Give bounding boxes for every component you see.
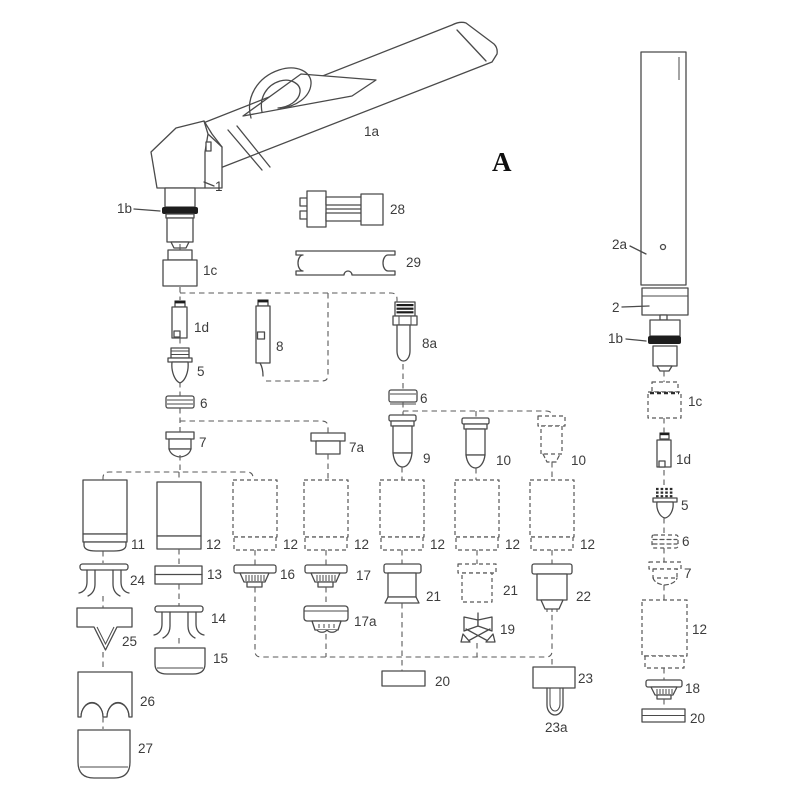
label-part-5-left: 5 bbox=[197, 364, 205, 379]
part-27-cup bbox=[78, 730, 130, 778]
part-6-right-phantom bbox=[652, 535, 678, 548]
label-part-13: 13 bbox=[207, 567, 222, 582]
part-15-cup bbox=[155, 648, 205, 674]
label-part-18: 18 bbox=[685, 681, 700, 696]
part-7a-tip bbox=[311, 433, 345, 454]
label-part-17a: 17a bbox=[354, 614, 377, 629]
part-26-bracket bbox=[78, 672, 132, 717]
part-5-left-electrode bbox=[168, 348, 192, 383]
part-18-shield bbox=[646, 680, 682, 699]
label-part-7a: 7a bbox=[349, 440, 365, 455]
part-19-spacer bbox=[461, 613, 495, 642]
diagram-canvas: A 1a 1 1b 28 1c 29 1d 8 8a 5 6 6 7 7a 9 … bbox=[0, 0, 800, 800]
label-part-7-left: 7 bbox=[199, 435, 207, 450]
part-7-left-tip bbox=[166, 432, 194, 457]
label-part-26: 26 bbox=[140, 694, 155, 709]
label-part-23: 23 bbox=[578, 671, 593, 686]
label-part-6-mid: 6 bbox=[420, 391, 428, 406]
label-part-25: 25 bbox=[122, 634, 137, 649]
label-part-6-left: 6 bbox=[200, 396, 208, 411]
label-part-17: 17 bbox=[356, 568, 371, 583]
label-part-1c-left: 1c bbox=[203, 263, 218, 278]
part-12-right-phantom bbox=[642, 600, 687, 668]
label-part-2: 2 bbox=[612, 300, 620, 315]
label-part-1: 1 bbox=[215, 179, 223, 194]
part-1c-left bbox=[163, 250, 197, 286]
part-22-cup bbox=[532, 564, 572, 612]
label-part-10-phantom: 10 bbox=[571, 453, 586, 468]
machine-torch-body bbox=[641, 52, 688, 371]
label-part-12-right: 12 bbox=[692, 622, 707, 637]
label-part-2a: 2a bbox=[612, 237, 628, 252]
label-part-12-col7: 12 bbox=[580, 537, 595, 552]
label-part-12-col3: 12 bbox=[283, 537, 298, 552]
label-part-20-right: 20 bbox=[690, 711, 705, 726]
part-20-knurled-ring-mid bbox=[382, 671, 425, 686]
label-part-1b-right: 1b bbox=[608, 331, 623, 346]
label-part-12-col5: 12 bbox=[430, 537, 445, 552]
part-6-mid-swirl-ring bbox=[389, 390, 417, 404]
part-12-phantom-col3 bbox=[233, 480, 277, 550]
label-part-11: 11 bbox=[131, 537, 145, 552]
part-1d-right bbox=[657, 433, 671, 467]
part-8-electrode bbox=[256, 300, 270, 376]
label-part-27: 27 bbox=[138, 741, 153, 756]
part-13-knurled-ring bbox=[155, 566, 202, 584]
label-part-6-right: 6 bbox=[682, 534, 690, 549]
part-9-nozzle bbox=[389, 415, 416, 467]
part-6-left-swirl-ring bbox=[166, 396, 194, 408]
exploded-parts-diagram: A 1a 1 1b 28 1c 29 1d 8 8a 5 6 6 7 7a 9 … bbox=[0, 0, 800, 800]
label-part-10: 10 bbox=[496, 453, 511, 468]
part-14-spacer bbox=[154, 606, 204, 638]
label-part-28: 28 bbox=[390, 202, 405, 217]
part-11-shield-cup bbox=[83, 480, 127, 551]
label-part-14: 14 bbox=[211, 611, 227, 626]
part-5-right-electrode bbox=[653, 489, 677, 518]
part-8a-electrode bbox=[393, 302, 417, 361]
part-1d-left bbox=[172, 301, 187, 338]
part-29-wrench bbox=[296, 251, 395, 275]
part-16-shield bbox=[234, 565, 276, 587]
label-part-19: 19 bbox=[500, 622, 515, 637]
label-part-29: 29 bbox=[406, 255, 421, 270]
label-part-21: 21 bbox=[426, 589, 441, 604]
label-part-15: 15 bbox=[213, 651, 228, 666]
label-part-12-col6: 12 bbox=[505, 537, 520, 552]
label-part-1b-left: 1b bbox=[117, 201, 132, 216]
part-12-phantom-col5 bbox=[380, 480, 424, 550]
label-part-9: 9 bbox=[423, 451, 431, 466]
hand-torch-body bbox=[188, 22, 498, 171]
part-17-shield bbox=[305, 565, 347, 587]
part-12-phantom-col7 bbox=[530, 480, 574, 550]
part-12-retaining-cap bbox=[157, 482, 201, 549]
part-17a-shield bbox=[304, 606, 348, 632]
label-part-21-phantom: 21 bbox=[503, 583, 518, 598]
label-part-8: 8 bbox=[276, 339, 284, 354]
part-28-tool bbox=[300, 191, 383, 227]
part-21-cup-phantom bbox=[458, 564, 496, 602]
label-part-12-col2: 12 bbox=[206, 537, 221, 552]
part-10-nozzle-phantom bbox=[538, 416, 565, 462]
label-part-7-right: 7 bbox=[684, 566, 692, 581]
label-part-8a: 8a bbox=[422, 336, 438, 351]
part-20-knurled-ring-right bbox=[642, 709, 685, 722]
part-24-spacer bbox=[79, 564, 129, 596]
part-7-right-phantom bbox=[649, 562, 681, 585]
label-part-5-right: 5 bbox=[681, 498, 689, 513]
label-part-23a: 23a bbox=[545, 720, 568, 735]
label-figure-letter: A bbox=[492, 147, 512, 177]
label-part-20-mid: 20 bbox=[435, 674, 450, 689]
label-part-24: 24 bbox=[130, 573, 146, 588]
label-part-1d-left: 1d bbox=[194, 320, 209, 335]
part-10-nozzle bbox=[462, 418, 489, 468]
part-21-cup bbox=[384, 564, 421, 603]
label-part-22: 22 bbox=[576, 589, 591, 604]
label-part-16: 16 bbox=[280, 567, 295, 582]
label-part-1a: 1a bbox=[364, 124, 380, 139]
part-12-phantom-col4 bbox=[304, 480, 348, 550]
part-1c-right-phantom bbox=[648, 382, 681, 418]
label-part-1d-right: 1d bbox=[676, 452, 691, 467]
part-23-handle bbox=[533, 667, 575, 715]
label-part-1c-right: 1c bbox=[688, 394, 703, 409]
label-part-12-col4: 12 bbox=[354, 537, 369, 552]
part-12-phantom-col6 bbox=[455, 480, 499, 550]
